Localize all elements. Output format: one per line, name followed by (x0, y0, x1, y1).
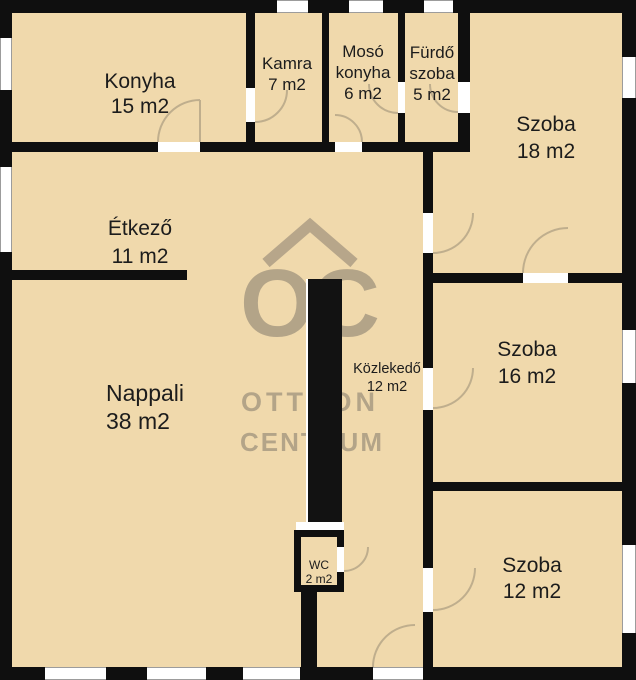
room-label-furdo-szoba: Fürdő szoba 5 m2 (396, 21, 468, 126)
room-area: 2 m2 (296, 572, 342, 586)
window-left-konyha (0, 38, 12, 90)
window-right-szoba12 (622, 545, 636, 633)
room-area: 16 m2 (467, 363, 587, 390)
room-name: Fürdő szoba (409, 43, 454, 83)
entrance-door-gap (373, 667, 423, 680)
room-area: 15 m2 (70, 94, 210, 119)
room-area: 5 m2 (396, 84, 468, 105)
wall-szoba16-bottom (427, 482, 636, 491)
wall-under-wc (301, 592, 317, 668)
window-top-furdo (424, 0, 453, 13)
door-gap-moso (335, 142, 362, 152)
room-area: 12 m2 (336, 378, 438, 396)
room-area: 38 m2 (106, 407, 246, 435)
wall-left (0, 0, 12, 680)
wall-top (0, 0, 636, 13)
room-label-szoba-16: Szoba 16 m2 (467, 309, 587, 417)
room-name: Szoba (516, 113, 576, 136)
room-area: 7 m2 (248, 74, 326, 95)
room-label-moso-konyha: Mosó konyha 6 m2 (324, 20, 402, 125)
room-name: Szoba (497, 338, 557, 361)
floor-plan: OC OTTHON CENTRUM (0, 0, 636, 680)
room-name: Közlekedő (353, 361, 421, 377)
room-area: 12 m2 (472, 579, 592, 605)
door-gap-szoba18-szoba16 (523, 273, 568, 283)
room-name: Étkező (108, 217, 172, 240)
room-name: Konyha (104, 70, 175, 93)
room-area: 6 m2 (324, 83, 402, 104)
door-gap-szoba12 (423, 568, 433, 612)
room-label-kamra: Kamra 7 m2 (248, 32, 326, 116)
room-name: Kamra (262, 54, 312, 73)
window-bottom-1 (45, 667, 106, 680)
window-bottom-2 (147, 667, 206, 680)
room-label-wc: WC 2 m2 (296, 544, 342, 600)
room-label-szoba-18: Szoba 18 m2 (486, 84, 606, 192)
window-right-szoba18 (622, 57, 636, 98)
room-label-konyha: Konyha 15 m2 (70, 44, 210, 144)
window-top-moso (349, 0, 383, 13)
room-label-kozlekedo: Közlekedő 12 m2 (336, 342, 438, 414)
room-area: 11 m2 (78, 243, 202, 271)
window-bottom-3 (243, 667, 300, 680)
room-name: Nappali (106, 380, 184, 406)
shaft-wc-separator (296, 522, 344, 530)
window-top-kamra (277, 0, 308, 13)
door-gap-szoba18 (423, 213, 433, 253)
window-right-szoba16 (622, 330, 636, 383)
room-label-etkezo: Étkező 11 m2 (78, 187, 202, 299)
room-area: 18 m2 (486, 138, 606, 165)
room-name: Mosó konyha (336, 42, 391, 82)
room-label-nappali: Nappali 38 m2 (106, 351, 246, 463)
window-left-etkezo (0, 167, 12, 252)
room-label-szoba-12: Szoba 12 m2 (472, 527, 592, 631)
room-name: Szoba (502, 554, 562, 577)
room-name: WC (309, 558, 329, 572)
